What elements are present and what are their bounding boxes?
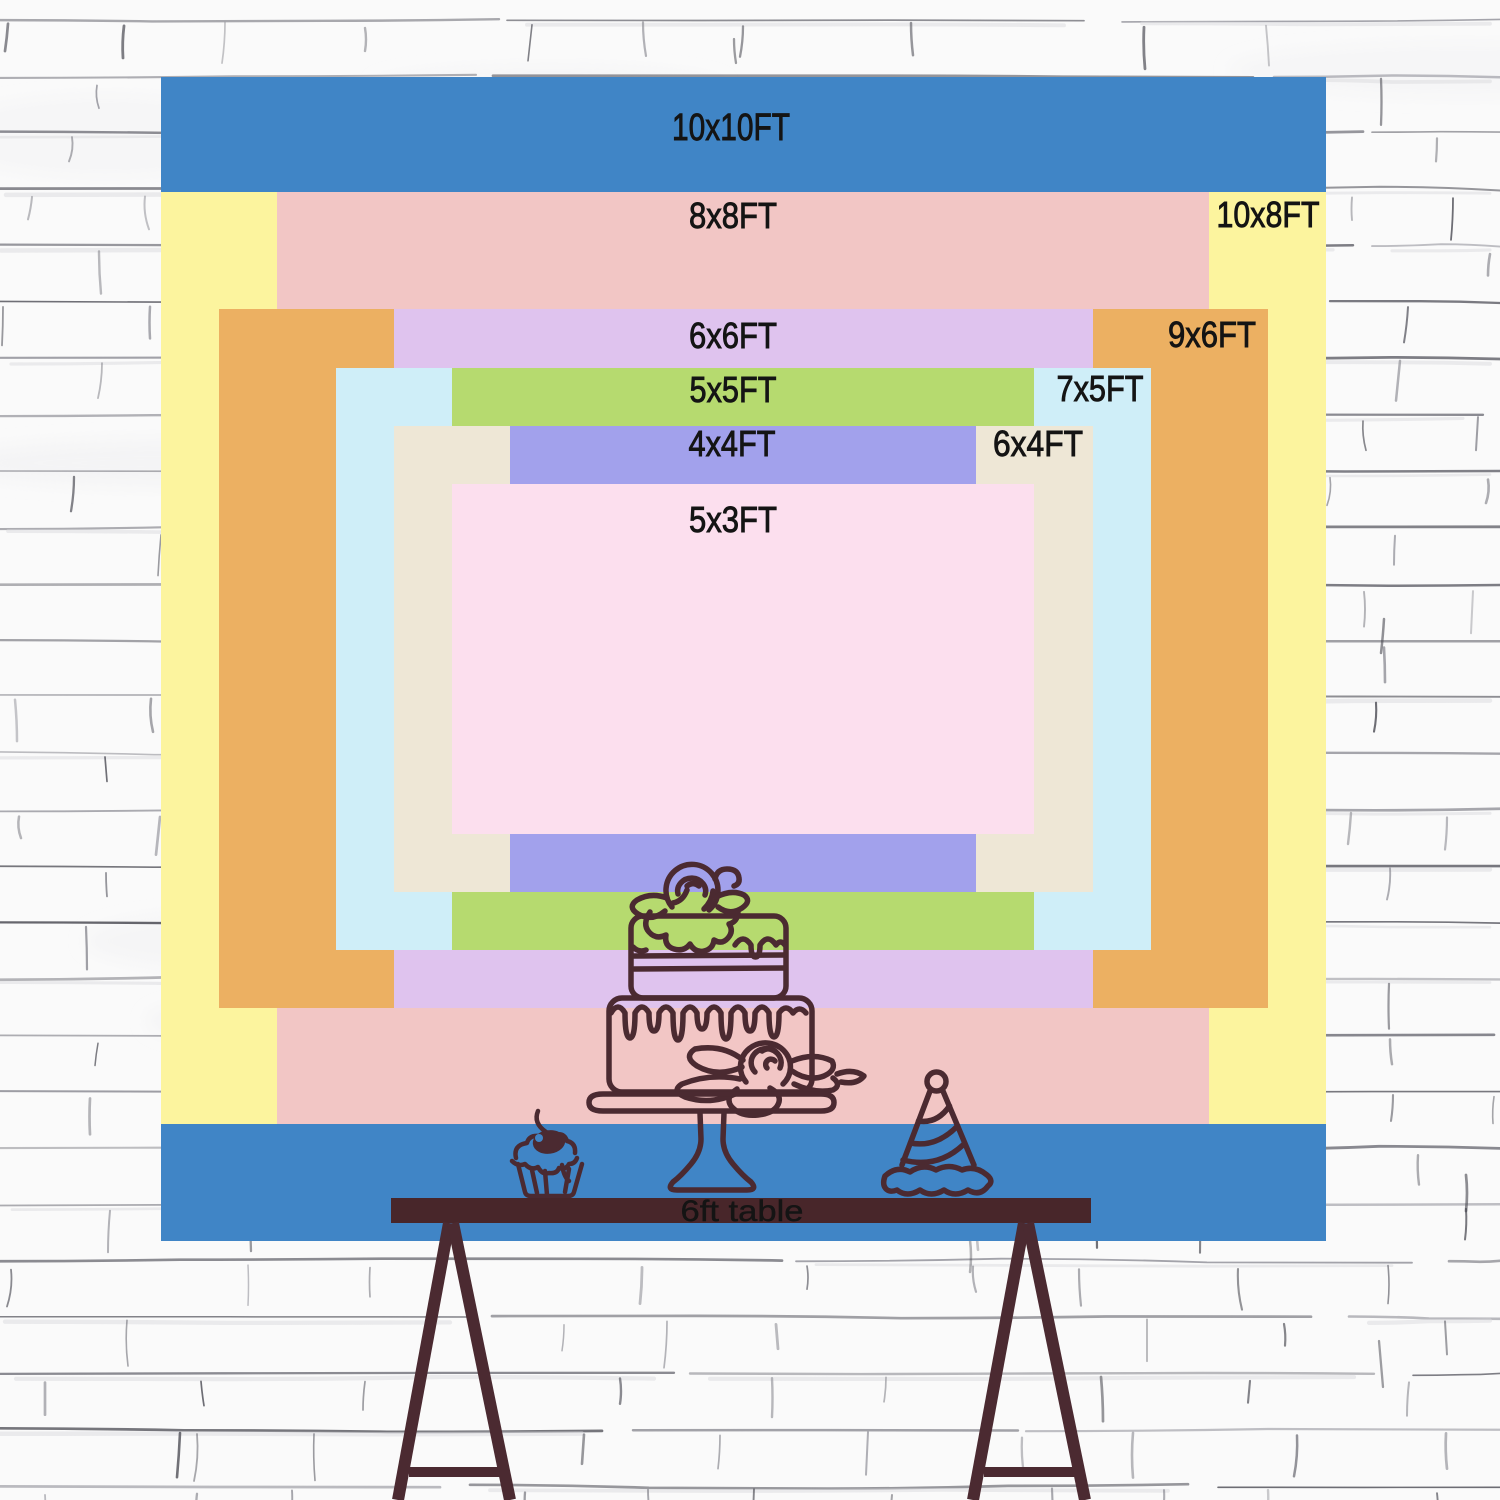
svg-text:6ft table: 6ft table xyxy=(681,1195,804,1228)
svg-text:10x10FT: 10x10FT xyxy=(672,107,790,149)
svg-text:4x4FT: 4x4FT xyxy=(689,423,776,464)
svg-text:5x5FT: 5x5FT xyxy=(690,369,777,410)
svg-text:6x4FT: 6x4FT xyxy=(993,423,1083,464)
svg-text:5x3FT: 5x3FT xyxy=(689,499,777,540)
svg-text:10x8FT: 10x8FT xyxy=(1217,194,1320,235)
svg-text:7x5FT: 7x5FT xyxy=(1057,368,1144,409)
svg-text:8x8FT: 8x8FT xyxy=(689,195,777,236)
svg-text:6x6FT: 6x6FT xyxy=(689,315,777,356)
svg-text:9x6FT: 9x6FT xyxy=(1168,314,1256,355)
